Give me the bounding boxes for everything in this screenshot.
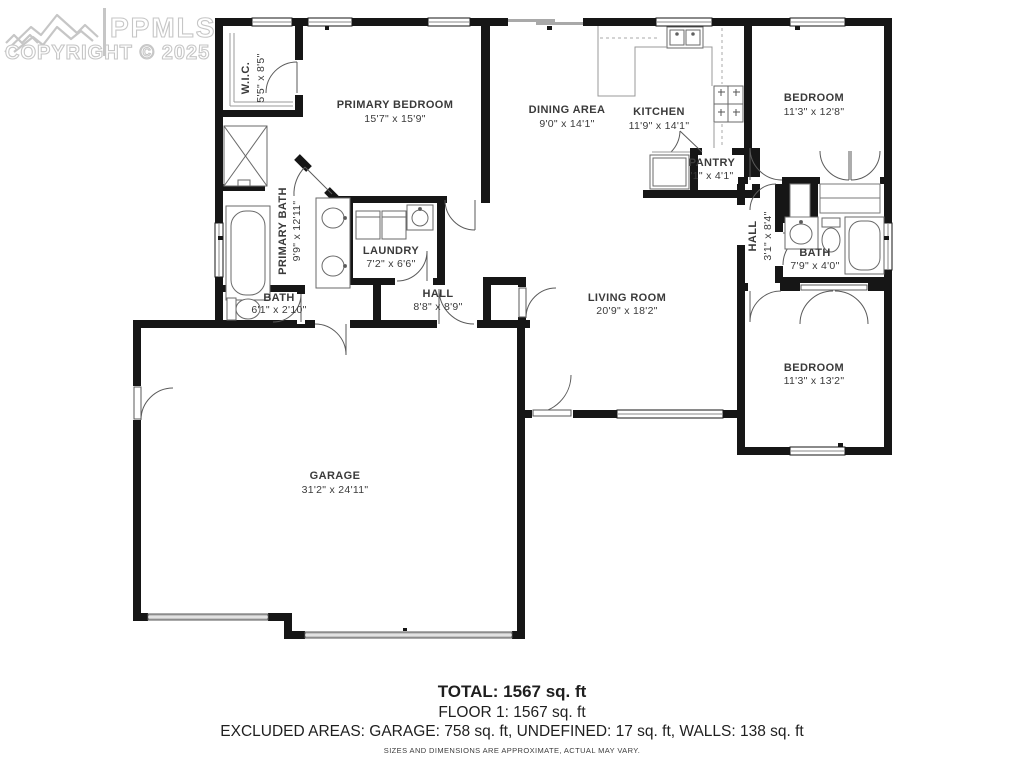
watermark-brand: PPMLS — [110, 12, 216, 43]
room-dims-dining-area: 9'0" x 14'1" — [539, 118, 594, 130]
room-dims-living-room: 20'9" x 18'2" — [596, 305, 658, 317]
room-dims-kitchen: 11'9" x 14'1" — [629, 120, 690, 132]
total-area-text: TOTAL: 1567 sq. ft — [0, 682, 1024, 702]
wic-door-arc — [266, 62, 297, 93]
room-label-dining-area: DINING AREA — [529, 104, 606, 116]
closet-boxes — [790, 184, 880, 217]
pantry-door-arc — [671, 131, 680, 152]
patio-door-arc — [533, 375, 571, 413]
room-label-laundry: LAUNDRY — [363, 245, 419, 257]
garage-entry-door-arc — [315, 324, 346, 355]
bedroom2-door-arc — [750, 291, 781, 322]
room-label-pantry: PANTRY — [689, 157, 736, 169]
double-vanity — [316, 198, 350, 288]
room-label-living-room: LIVING ROOM — [588, 292, 666, 304]
primary-bath-door-arc — [294, 167, 305, 196]
watermark-copyright: COPYRIGHT © 2025 — [5, 42, 210, 64]
refrigerator — [650, 155, 689, 189]
walls — [133, 18, 892, 639]
excluded-areas-text: EXCLUDED AREAS: GARAGE: 758 sq. ft, UNDE… — [0, 723, 1024, 741]
bedroom2-closet-left-arc — [800, 291, 833, 324]
room-dims-bedroom2: 11'3" x 13'2" — [784, 375, 845, 387]
stove — [714, 86, 743, 122]
dryer — [382, 211, 406, 239]
fixtures — [224, 27, 884, 320]
room-dims-wic: 5'5" x 8'5" — [255, 53, 267, 102]
room-dims-hall1: 3'1" x 8'4" — [762, 211, 774, 260]
room-dims-bath1: 7'9" x 4'0" — [790, 260, 839, 272]
room-dims-hall2: 8'8" x 8'9" — [413, 301, 462, 313]
kitchen-sink — [667, 27, 703, 48]
room-label-wic: W.I.C. — [240, 62, 252, 94]
room-label-bedroom2: BEDROOM — [784, 362, 844, 374]
bathtub — [845, 217, 884, 274]
front-door-arc — [526, 288, 556, 318]
bedroom2-closet-right-arc — [835, 291, 868, 324]
shower — [224, 126, 267, 186]
bath-sink — [785, 217, 818, 249]
floor-area-text: FLOOR 1: 1567 sq. ft — [0, 704, 1024, 722]
room-label-hall2: HALL — [423, 288, 454, 300]
room-dims-garage: 31'2" x 24'11" — [302, 484, 369, 496]
room-label-bath1: BATH — [799, 247, 830, 259]
sliding-door — [508, 19, 583, 25]
floor-plan-svg: PPMLS COPYRIGHT © 2025 — [0, 0, 1024, 767]
laundry-sink — [407, 205, 433, 230]
room-label-hall1: HALL — [747, 221, 759, 252]
room-label-primary-bedroom: PRIMARY BEDROOM — [337, 99, 454, 111]
room-dims-laundry: 7'2" x 6'6" — [366, 258, 415, 270]
room-label-bedroom1: BEDROOM — [784, 92, 844, 104]
room-dims-bedroom1: 11'3" x 12'8" — [784, 106, 845, 118]
room-label-primary-bath: PRIMARY BATH — [277, 187, 289, 275]
room-dims-primary-bedroom: 15'7" x 15'9" — [364, 113, 426, 125]
room-label-kitchen: KITCHEN — [633, 106, 685, 118]
garage-doors — [148, 614, 512, 638]
closet-bifold-right-arc — [851, 151, 880, 180]
room-label-garage: GARAGE — [310, 470, 361, 482]
room-label-bath2: BATH — [263, 292, 294, 304]
closet-bifold-left-arc — [820, 151, 849, 180]
disclaimer-text: SIZES AND DIMENSIONS ARE APPROXIMATE, AC… — [0, 746, 1024, 755]
room-dims-bath2: 6'1" x 2'10" — [251, 304, 306, 316]
room-dims-primary-bath: 9'9" x 12'11" — [291, 201, 303, 262]
garage-side-door-arc — [141, 388, 173, 420]
washer — [356, 211, 380, 239]
primary-bedroom-door-arc — [445, 200, 475, 230]
watermark: PPMLS COPYRIGHT © 2025 — [5, 8, 216, 64]
primary-bathtub — [226, 206, 270, 300]
room-dims-pantry: '1" x 4'1" — [690, 170, 733, 182]
